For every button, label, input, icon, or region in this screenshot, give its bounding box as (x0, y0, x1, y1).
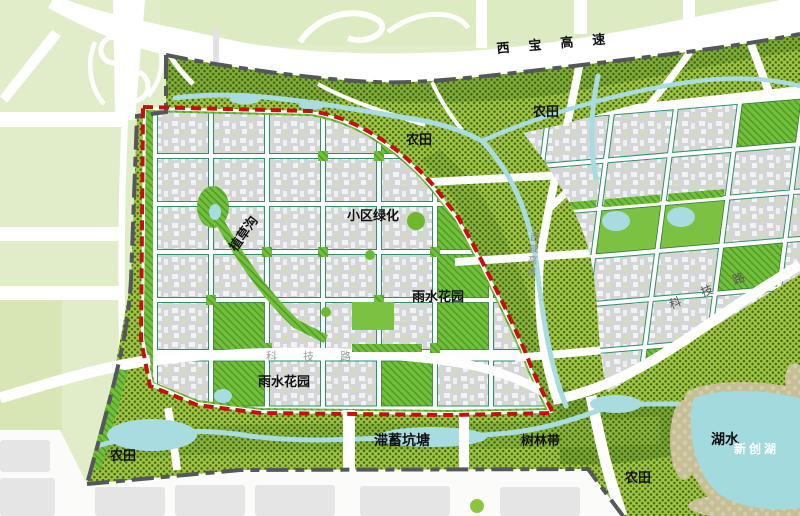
svg-text:农田: 农田 (624, 470, 651, 485)
svg-text:雨水花园: 雨水花园 (258, 374, 310, 389)
svg-text:科技路: 科技路 (266, 349, 377, 363)
svg-text:农田: 农田 (109, 448, 136, 463)
svg-text:农田: 农田 (405, 132, 432, 147)
svg-text:新创湖: 新创湖 (734, 441, 779, 456)
svg-text:雨水花园: 雨水花园 (412, 289, 464, 304)
svg-text:滞蓄坑塘: 滞蓄坑塘 (374, 432, 430, 448)
svg-text:农田: 农田 (532, 104, 559, 119)
svg-text:树林带: 树林带 (521, 433, 560, 448)
svg-text:小区绿化: 小区绿化 (347, 208, 399, 223)
